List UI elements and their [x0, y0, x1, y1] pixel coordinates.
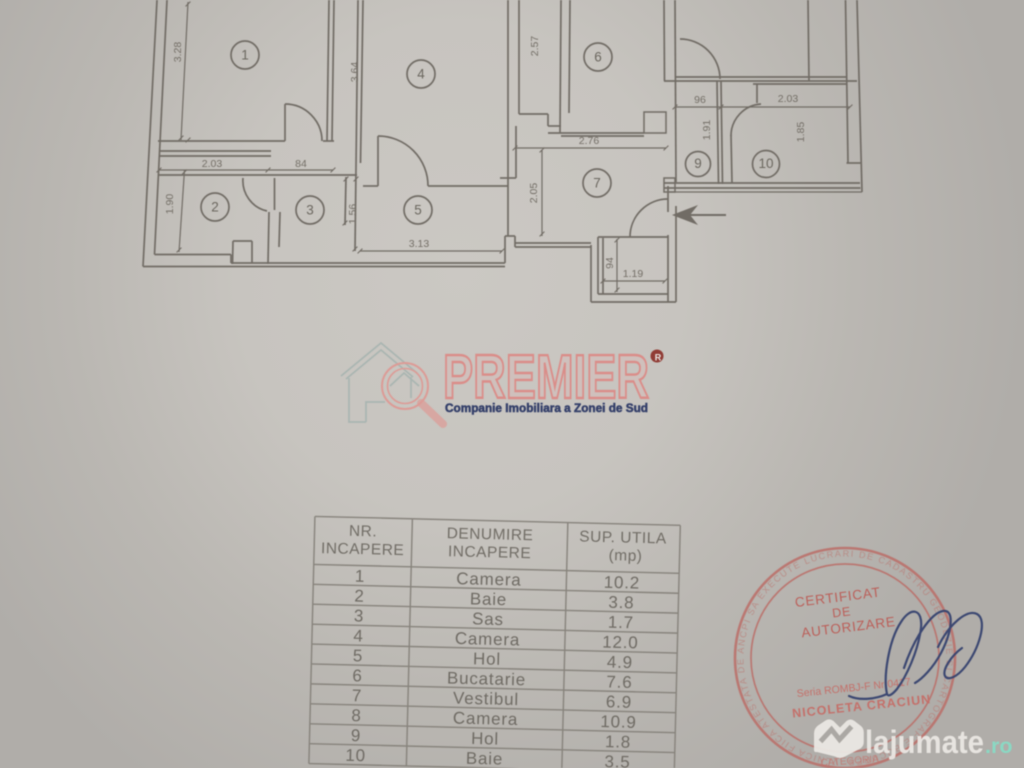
svg-text:84: 84 — [295, 158, 307, 170]
svg-text:1: 1 — [355, 567, 366, 586]
svg-text:1.91: 1.91 — [701, 120, 713, 141]
svg-text:Baie: Baie — [470, 589, 508, 609]
svg-text:3: 3 — [306, 203, 314, 218]
svg-text:Sas: Sas — [472, 609, 504, 629]
svg-text:1.19: 1.19 — [623, 268, 644, 280]
svg-text:R: R — [655, 353, 662, 363]
svg-text:2: 2 — [211, 200, 219, 215]
svg-text:4.9: 4.9 — [607, 653, 634, 673]
svg-text:lajumate: lajumate — [865, 724, 984, 760]
svg-text:8: 8 — [351, 706, 362, 725]
svg-text:1.85: 1.85 — [795, 122, 807, 143]
svg-text:Baie: Baie — [466, 749, 504, 768]
svg-text:1.7: 1.7 — [608, 613, 635, 633]
svg-text:96: 96 — [694, 94, 706, 106]
svg-text:2.03: 2.03 — [202, 158, 223, 170]
svg-text:5: 5 — [414, 203, 422, 218]
svg-text:1.56: 1.56 — [347, 204, 359, 225]
svg-text:Hol: Hol — [471, 729, 499, 749]
svg-text:94: 94 — [604, 257, 616, 269]
svg-text:2.57: 2.57 — [529, 36, 541, 57]
svg-text:7.6: 7.6 — [606, 672, 633, 692]
svg-text:Bucatarie: Bucatarie — [447, 669, 526, 690]
svg-text:10.2: 10.2 — [604, 573, 641, 593]
svg-text:2.05: 2.05 — [528, 183, 540, 204]
svg-text:7: 7 — [593, 176, 601, 191]
svg-text:7: 7 — [352, 686, 363, 705]
svg-text:INCAPERE: INCAPERE — [321, 540, 405, 559]
svg-text:1.90: 1.90 — [164, 194, 176, 215]
svg-text:Camera: Camera — [455, 629, 521, 650]
svg-text:Camera: Camera — [453, 708, 519, 729]
svg-text:DE: DE — [831, 604, 852, 620]
svg-text:3.28: 3.28 — [172, 42, 184, 63]
svg-text:1: 1 — [241, 48, 249, 63]
svg-text:(mp): (mp) — [608, 547, 642, 565]
svg-text:SUP. UTILA: SUP. UTILA — [579, 528, 667, 547]
svg-text:NR.: NR. — [349, 523, 378, 541]
svg-text:3.64: 3.64 — [349, 62, 361, 83]
svg-text:2.76: 2.76 — [579, 135, 600, 147]
svg-text:3.13: 3.13 — [409, 238, 430, 250]
svg-text:1.8: 1.8 — [605, 732, 632, 752]
svg-text:2.03: 2.03 — [778, 93, 799, 105]
svg-text:3.5: 3.5 — [604, 752, 631, 768]
svg-text:3.8: 3.8 — [608, 593, 635, 613]
svg-text:4: 4 — [417, 67, 425, 82]
svg-text:INCAPERE: INCAPERE — [448, 543, 532, 562]
svg-text:6: 6 — [594, 50, 602, 65]
svg-text:DENUMIRE: DENUMIRE — [446, 525, 533, 544]
svg-text:5: 5 — [353, 646, 364, 665]
svg-text:2: 2 — [354, 587, 365, 606]
svg-text:6.9: 6.9 — [606, 692, 633, 712]
svg-text:3: 3 — [354, 606, 365, 625]
svg-text:10.9: 10.9 — [600, 712, 637, 732]
svg-text:10: 10 — [758, 156, 773, 171]
svg-text:9: 9 — [351, 726, 362, 745]
svg-text:4: 4 — [353, 626, 364, 645]
svg-text:Companie Imobiliara a Zonei de: Companie Imobiliara a Zonei de Sud — [445, 401, 648, 415]
svg-text:Camera: Camera — [456, 569, 522, 590]
svg-text:10: 10 — [345, 746, 366, 765]
svg-text:12.0: 12.0 — [602, 632, 639, 652]
svg-text:.ro: .ro — [985, 734, 1012, 758]
svg-text:6: 6 — [352, 666, 363, 685]
svg-text:Vestibul: Vestibul — [453, 689, 519, 710]
svg-text:Hol: Hol — [473, 649, 501, 669]
svg-text:9: 9 — [694, 156, 702, 171]
